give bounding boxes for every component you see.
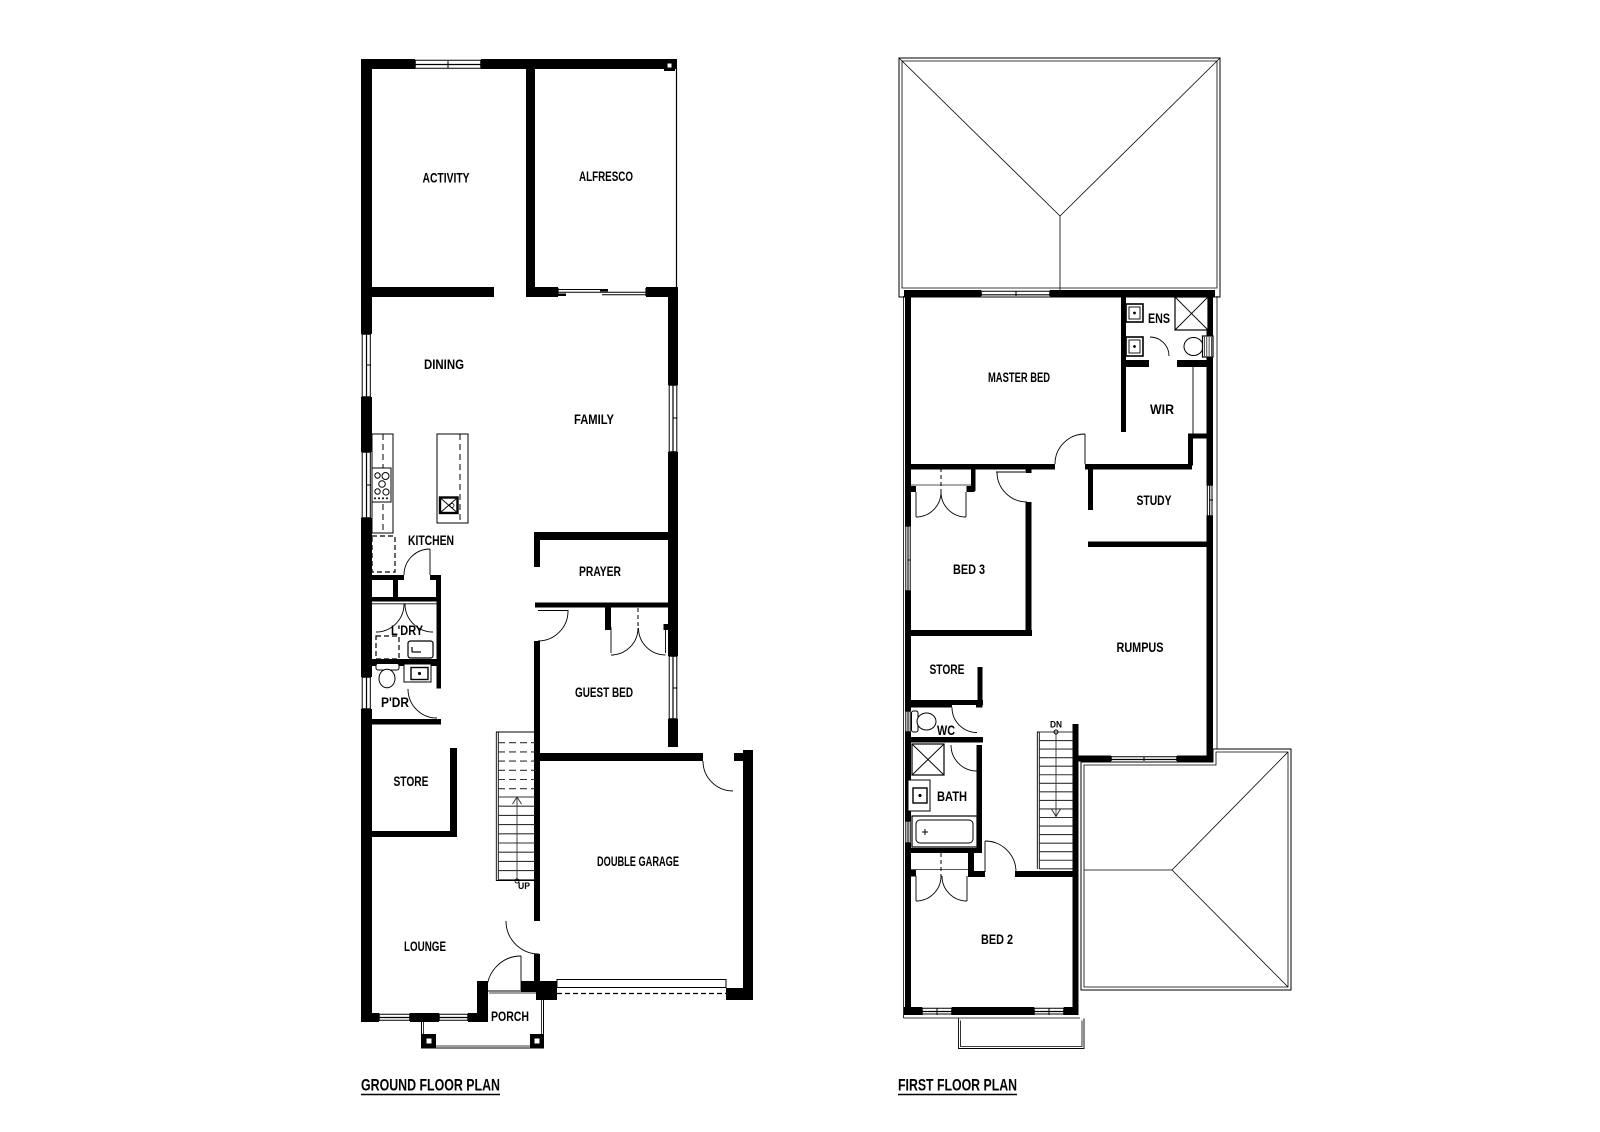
svg-text:BED 3: BED 3: [953, 562, 985, 578]
svg-text:BATH: BATH: [937, 789, 967, 805]
svg-text:DOUBLE GARAGE: DOUBLE GARAGE: [597, 854, 679, 870]
svg-text:PRAYER: PRAYER: [579, 564, 621, 580]
svg-text:GUEST BED: GUEST BED: [575, 685, 633, 701]
svg-text:DN: DN: [1050, 720, 1062, 730]
svg-text:RUMPUS: RUMPUS: [1117, 640, 1164, 656]
svg-text:STUDY: STUDY: [1137, 493, 1172, 509]
svg-text:FAMILY: FAMILY: [574, 412, 614, 428]
svg-text:L'DRY: L'DRY: [391, 623, 423, 639]
svg-text:KITCHEN: KITCHEN: [408, 533, 454, 549]
svg-text:GROUND FLOOR PLAN: GROUND FLOOR PLAN: [361, 1077, 500, 1095]
svg-text:PORCH: PORCH: [491, 1009, 529, 1025]
svg-text:ALFRESCO: ALFRESCO: [579, 169, 633, 185]
svg-text:WIR: WIR: [1150, 402, 1174, 418]
svg-text:MASTER BED: MASTER BED: [988, 370, 1050, 386]
svg-text:DINING: DINING: [424, 357, 464, 373]
svg-text:STORE: STORE: [394, 774, 429, 790]
svg-text:STORE: STORE: [930, 662, 965, 678]
svg-text:ENS: ENS: [1148, 311, 1170, 327]
svg-text:FIRST FLOOR PLAN: FIRST FLOOR PLAN: [898, 1077, 1017, 1095]
svg-text:WC: WC: [937, 723, 955, 739]
svg-text:ACTIVITY: ACTIVITY: [423, 170, 470, 186]
svg-text:UP: UP: [518, 881, 530, 891]
svg-text:BED 2: BED 2: [981, 932, 1013, 948]
svg-text:P'DR: P'DR: [381, 695, 409, 711]
svg-text:LOUNGE: LOUNGE: [404, 939, 446, 955]
